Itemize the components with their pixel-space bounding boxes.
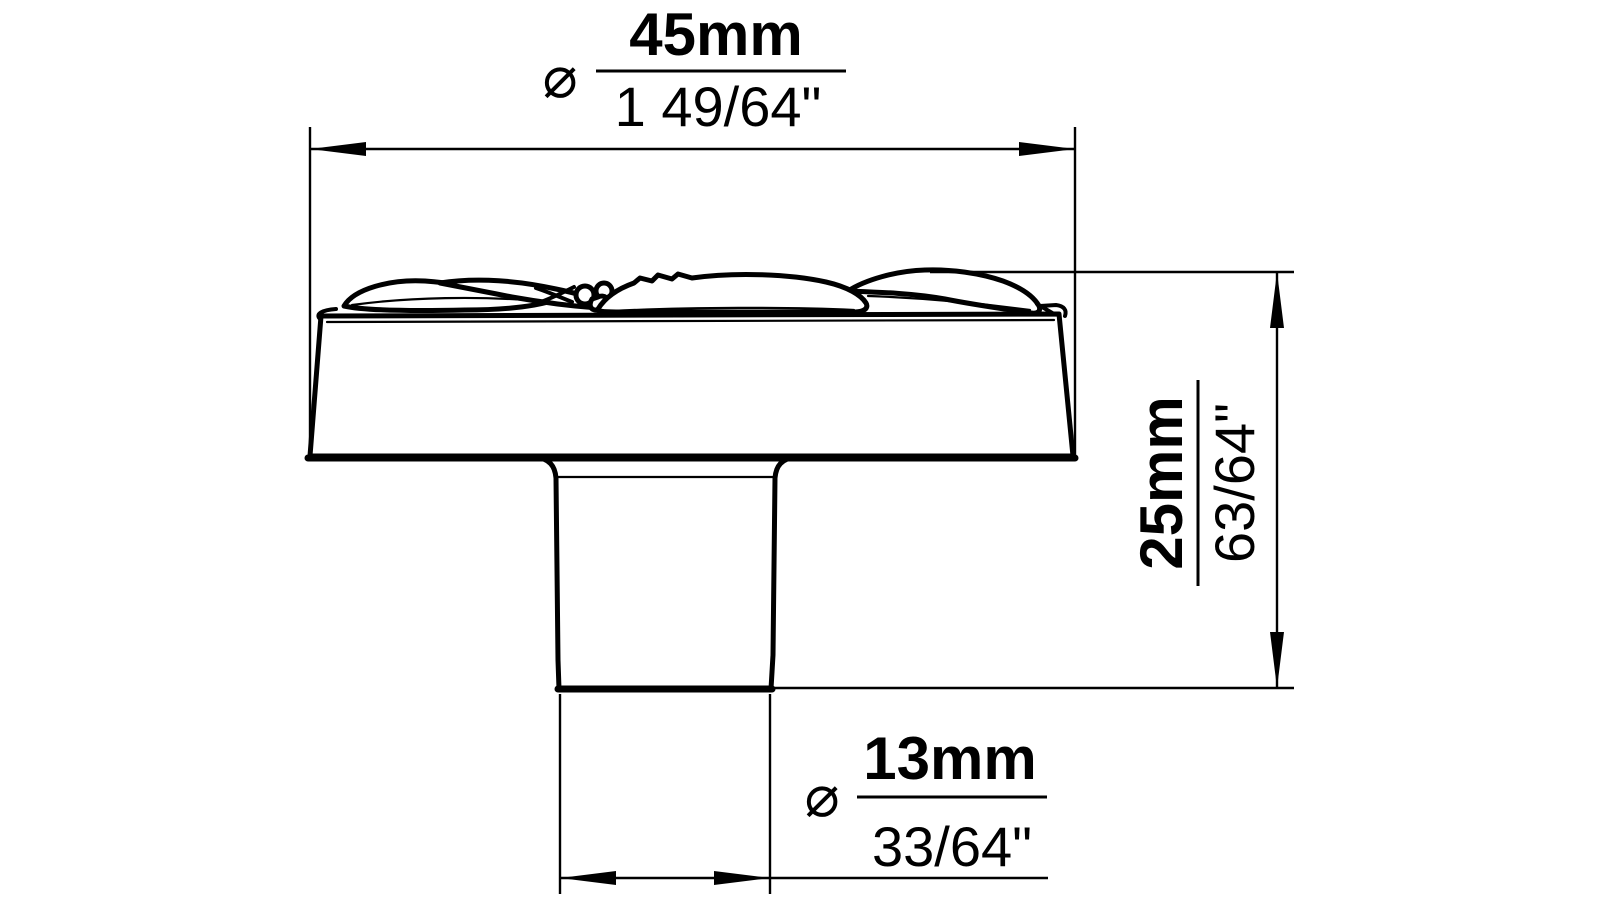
width-imperial-label: 1 49/64" <box>615 75 822 138</box>
width-arrow-left <box>310 142 366 156</box>
width-diameter-symbol: ⌀ <box>543 43 578 111</box>
height-arrow-bottom <box>1270 632 1284 688</box>
knob-stem <box>534 456 797 689</box>
height-arrow-top <box>1270 272 1284 328</box>
stem-metric-label: 13mm <box>863 725 1036 792</box>
knob-outline <box>308 270 1075 689</box>
height-metric-label: 25mm <box>1128 396 1195 569</box>
drawing-canvas: ⌀ 45mm 1 49/64" 25mm 63/64" ⌀ 13mm 33/64… <box>0 0 1600 900</box>
width-metric-label: 45mm <box>629 1 802 68</box>
height-imperial-label: 63/64" <box>1203 403 1266 563</box>
height-label-group: 25mm 63/64" <box>1128 380 1266 586</box>
knob-technical-drawing: ⌀ 45mm 1 49/64" 25mm 63/64" ⌀ 13mm 33/64… <box>0 0 1600 900</box>
stem-dimension: ⌀ 13mm 33/64" <box>560 694 1048 894</box>
stem-imperial-label: 33/64" <box>872 815 1032 878</box>
stem-diameter-symbol: ⌀ <box>805 762 840 830</box>
petal-cluster <box>344 270 1054 314</box>
petal-middle <box>597 274 867 312</box>
stem-arrow-right <box>714 871 770 885</box>
knob-body <box>310 314 1073 456</box>
stem-arrow-left <box>560 871 616 885</box>
width-arrow-right <box>1019 142 1075 156</box>
